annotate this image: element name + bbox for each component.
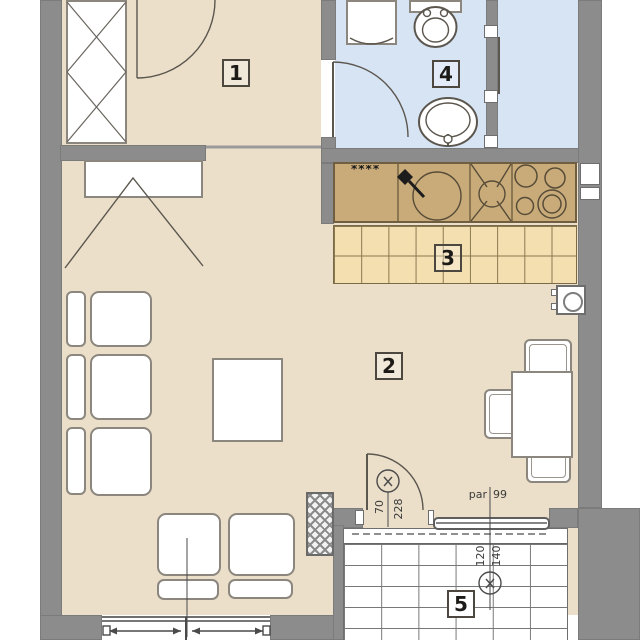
right-wall — [578, 0, 602, 508]
parapet-value: 99 — [493, 489, 515, 501]
wardrobe — [66, 0, 127, 144]
vent-symbol-icon — [556, 285, 586, 315]
coffee-table — [212, 358, 283, 442]
dishwasher-marks: **** — [351, 165, 395, 174]
washing-machine — [346, 0, 397, 45]
vent-circle-icon — [563, 292, 583, 312]
window-height: 140 — [491, 541, 503, 571]
coat-shelf — [84, 160, 203, 198]
room1-label: 1 — [222, 59, 250, 87]
bottom-wall-left — [40, 615, 102, 640]
window-width: 120 — [475, 541, 487, 571]
bed-mattress-left — [157, 513, 221, 576]
sofa-seat-1 — [90, 291, 152, 347]
room3-label: 3 — [434, 244, 462, 272]
room5-label: 5 — [447, 590, 475, 618]
sofa-seat-2 — [90, 354, 152, 420]
bed-mattress-right — [228, 513, 295, 576]
floor-plan: **** — [0, 0, 640, 640]
wall-niche-box-top — [580, 163, 600, 185]
balcony-wall-right-segment — [549, 508, 578, 528]
partition-jamb-mid — [484, 90, 498, 103]
bed-cushion-left — [157, 579, 219, 600]
parapet-label: par — [461, 489, 487, 501]
partition-jamb-top — [484, 25, 498, 38]
shaft-column-icon — [306, 492, 334, 556]
left-wall — [40, 0, 62, 640]
balcony-window — [433, 517, 550, 530]
bathroom-left-wall-top — [321, 0, 336, 60]
bottom-window — [102, 616, 270, 640]
room1-bottom-wall — [60, 145, 206, 161]
sofa-back-3 — [66, 427, 86, 495]
sofa-seat-3 — [90, 427, 152, 496]
toilet-cistern — [409, 0, 462, 13]
room2-label: 2 — [375, 352, 403, 380]
partition-jamb-bottom — [484, 135, 498, 148]
sofa-back-2 — [66, 354, 86, 420]
bottom-right-wall-block — [578, 508, 640, 640]
room4-label: 4 — [432, 60, 460, 88]
dining-table — [511, 371, 573, 458]
bathroom-partition-wall — [486, 0, 498, 148]
balcony-door-width: 70 — [374, 492, 386, 522]
bed-cushion-right — [228, 579, 293, 599]
balcony-door-height: 228 — [393, 494, 405, 524]
bathroom-bottom-wall — [321, 148, 580, 163]
wall-niche-box-bottom — [580, 187, 600, 200]
balcony-door-jamb-left — [355, 510, 364, 525]
sofa-back-1 — [66, 291, 86, 347]
